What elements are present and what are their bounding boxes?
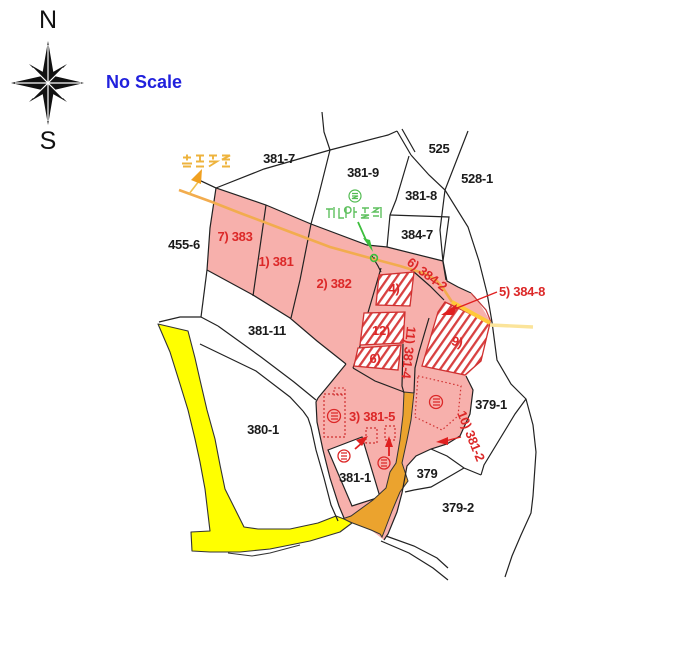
svg-text:528-1: 528-1 [461, 171, 493, 186]
svg-text:381-9: 381-9 [347, 165, 379, 180]
svg-text:381-8: 381-8 [405, 188, 437, 203]
svg-text:381-11: 381-11 [248, 323, 286, 338]
svg-text:380-1: 380-1 [247, 422, 279, 437]
svg-text:No Scale: No Scale [106, 72, 182, 92]
svg-text:12): 12) [372, 323, 390, 338]
svg-text:6): 6) [370, 351, 381, 366]
svg-text:379-2: 379-2 [442, 500, 474, 515]
svg-text:7) 383: 7) 383 [217, 229, 252, 244]
svg-text:381-1: 381-1 [339, 470, 371, 485]
svg-text:381-7: 381-7 [263, 151, 295, 166]
svg-text:455-6: 455-6 [168, 237, 200, 252]
svg-text:N: N [39, 6, 57, 34]
svg-text:5) 384-8: 5) 384-8 [499, 284, 545, 299]
svg-text:2) 382: 2) 382 [316, 276, 351, 291]
svg-text:4): 4) [389, 281, 400, 296]
svg-text:525: 525 [429, 141, 450, 156]
svg-text:379: 379 [417, 466, 438, 481]
svg-text:379-1: 379-1 [475, 397, 507, 412]
svg-text:384-7: 384-7 [401, 227, 433, 242]
svg-text:S: S [40, 127, 57, 155]
svg-text:1) 381: 1) 381 [258, 254, 293, 269]
svg-text:3) 381-5: 3) 381-5 [349, 409, 395, 424]
